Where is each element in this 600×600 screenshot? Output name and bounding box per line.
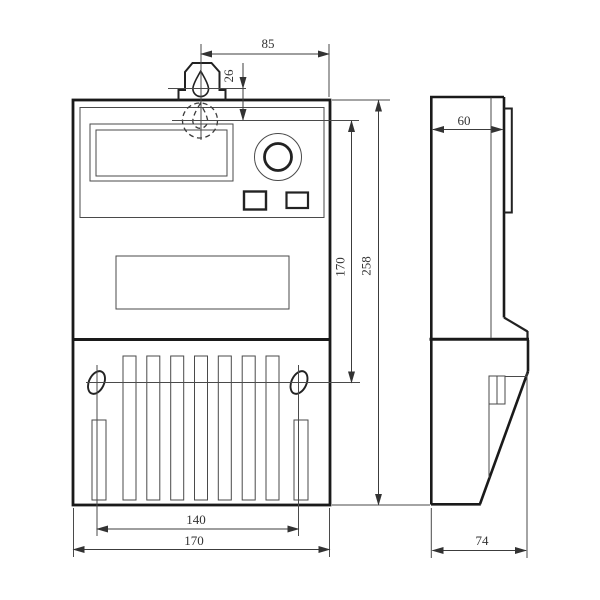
vent-slot [218,356,231,500]
vent-slot-short-left [92,420,106,500]
hanging-hook [168,44,246,140]
hook-outline [179,63,226,101]
technical-drawing-meter: 85 26 170 258 140 [0,0,600,600]
vent-slot [171,356,184,500]
lcd-display-outer [90,124,233,181]
dim-label-overall-height: 258 [359,256,374,276]
vent-slots [92,356,308,500]
vent-slot [266,356,279,500]
dimensions: 85 26 170 258 140 [74,36,528,558]
dim-label-depth-top: 60 [458,113,471,128]
drawing-canvas: 85 26 170 258 140 [0,0,600,600]
front-view [73,100,360,536]
vent-slot [123,356,136,500]
dim-label-overall-width: 170 [184,533,204,548]
dim-label-depth-overall: 74 [476,533,490,548]
vent-slot-short-right [294,420,308,500]
dim-label-hole-spacing: 140 [186,512,206,527]
side-cover-slope [480,372,528,505]
pushbutton-bezel [255,134,302,181]
dim-depth-top: 60 [433,113,503,130]
side-wedge-diagonal [504,318,528,332]
vent-slot [195,356,208,500]
dim-overall-height: 258 [332,100,390,505]
dim-window-height: 170 [333,121,352,383]
dim-depth-overall: 74 [431,373,527,558]
dim-hole-spacing: 140 [97,512,299,529]
nameplate [116,256,289,309]
vent-slot [242,356,255,500]
indicator-window-left [244,192,266,210]
vent-slot [147,356,160,500]
dim-label-window-height: 170 [333,257,348,277]
mounting-holes [85,365,360,536]
dim-label-hook-offset: 26 [221,69,236,83]
pushbutton [265,144,292,171]
side-view [430,97,530,505]
indicator-window-right [287,193,309,209]
dim-label-top-width: 85 [262,36,275,51]
